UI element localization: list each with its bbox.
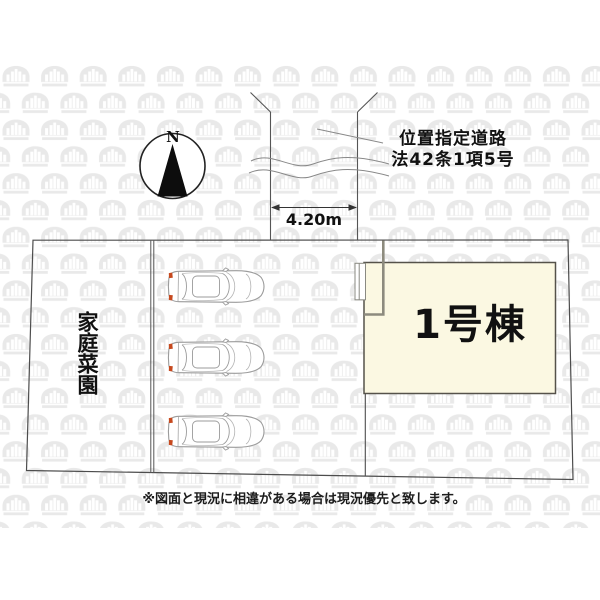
car-top-view-3 (168, 413, 264, 450)
site-plan-diagram: N 位置指定道路 法42条1項5号 4.20m 家庭菜園 1号棟 ※図面と現況に… (0, 0, 600, 600)
road-designation-line1: 位置指定道路 (378, 129, 528, 150)
road-designation-label: 位置指定道路 法42条1項5号 (378, 129, 528, 170)
building-1-label: 1号棟 (400, 302, 540, 348)
site-plan-canvas (0, 0, 600, 600)
road-width-label: 4.20m (281, 210, 347, 229)
building-entrance-step (355, 263, 366, 300)
garden-label: 家庭菜園 (76, 311, 98, 395)
car-top-view-2 (168, 339, 264, 376)
parking-cars (168, 268, 264, 450)
disclaimer-note: ※図面と現況に相違がある場合は現況優先と致します。 (4, 488, 600, 507)
road-designation-line2: 法42条1項5号 (378, 150, 528, 171)
compass-north-label: N (158, 128, 188, 146)
car-top-view-1 (168, 268, 264, 305)
